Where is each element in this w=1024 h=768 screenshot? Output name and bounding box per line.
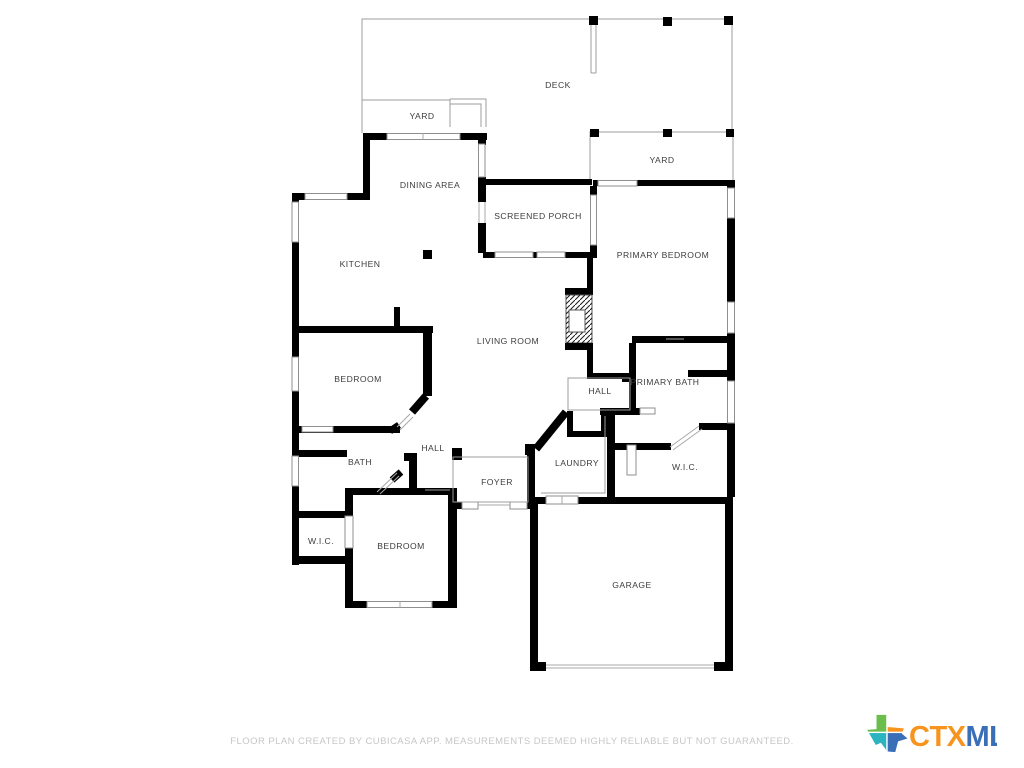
- wall-wic-top-b: [699, 423, 728, 430]
- ctxmls-wordmark: CTXMLS: [909, 721, 997, 753]
- wall-porch-bottom-a: [483, 252, 495, 258]
- wall-living-right-b: [587, 350, 593, 376]
- logo-ctx-text: CTX: [909, 721, 967, 753]
- room-label-screened-porch: SCREENED PORCH: [494, 211, 581, 221]
- room-label-living-room: LIVING ROOM: [477, 336, 539, 346]
- deck-post: [589, 16, 598, 25]
- floor-plan-drawing: DECK YARD YARD DINING AREA SCREENED PORC…: [0, 0, 1024, 768]
- window-foyer-bottom-2: [510, 502, 527, 509]
- wall-kitchen-stub: [394, 307, 400, 327]
- window-bath-left: [292, 456, 299, 486]
- opening-bedroom-left-2: [400, 417, 413, 430]
- texas-quadrant-green: [865, 714, 886, 732]
- deck-post: [590, 129, 599, 137]
- window-dining-porch: [479, 144, 486, 177]
- room-label-bedroom-lower: BEDROOM: [377, 541, 425, 551]
- room-label-hall-center: HALL: [421, 443, 444, 453]
- logo-mls-text: MLS: [966, 721, 998, 753]
- wall-wic-left-top: [293, 511, 347, 518]
- room-label-wic-right: W.I.C.: [672, 462, 698, 472]
- opening-bedroom-left-1: [397, 414, 410, 427]
- fireplace-cap-bottom: [565, 343, 593, 350]
- wall-bedroom-left-right: [423, 333, 432, 396]
- texas-quadrant-teal: [865, 733, 886, 755]
- wall-dining-porch-c: [478, 223, 486, 253]
- window-kitchen-top: [305, 194, 347, 200]
- room-label-wic-left: W.I.C.: [308, 536, 334, 546]
- texas-quadrant-blue: [888, 733, 909, 755]
- room-label-bedroom-left: BEDROOM: [334, 374, 382, 384]
- wall-kitchen-bottom: [292, 326, 433, 333]
- window-porch-bottom-2: [537, 252, 565, 258]
- fireplace: [565, 288, 593, 350]
- wall-island-post: [423, 250, 432, 259]
- wall-dining-porch-b: [478, 177, 486, 202]
- room-label-deck: DECK: [545, 80, 571, 90]
- window-bedroom-left-bottom: [302, 427, 333, 433]
- window-bedroom-left: [292, 357, 299, 391]
- wall-laundry-wic: [607, 412, 615, 497]
- deck-stairs-inner: [450, 104, 481, 127]
- wall-garage-corner-left: [530, 662, 546, 671]
- room-label-yard-lower: YARD: [649, 155, 674, 165]
- room-label-foyer: FOYER: [481, 477, 513, 487]
- room-label-primary-bedroom: PRIMARY BEDROOM: [617, 250, 709, 260]
- room-label-garage: GARAGE: [612, 580, 651, 590]
- room-label-laundry: LAUNDRY: [555, 458, 599, 468]
- wall-wic-left-bottom: [293, 556, 345, 564]
- texas-quadrant-orange: [888, 714, 909, 732]
- window-foyer-bottom-1: [462, 502, 478, 509]
- wall-garage-left: [530, 504, 538, 671]
- wall-alcove-right: [601, 413, 607, 437]
- wall-porch-bottom-c: [565, 252, 597, 258]
- wall-dining-left: [363, 133, 370, 196]
- windows: [292, 134, 735, 608]
- opening-wic-diagonal-1: [670, 426, 699, 447]
- door-wic-left: [345, 516, 353, 548]
- wall-wic-top-a: [615, 443, 671, 450]
- wall-bath-post-flag: [404, 453, 417, 461]
- wall-living-right-a: [587, 258, 593, 289]
- window-primary-bed-right-1: [728, 188, 735, 218]
- window-primary-bed-top: [598, 181, 637, 187]
- wall-porch-bottom-b: [533, 252, 537, 258]
- wall-garage-right: [725, 497, 733, 671]
- wall-porch-top: [483, 179, 592, 185]
- window-primary-bed-left: [591, 195, 597, 245]
- texas-icon: [865, 714, 908, 755]
- deck-posts: [589, 16, 734, 137]
- deck-post: [663, 129, 672, 137]
- window-primary-bed-right-2: [728, 302, 735, 333]
- room-label-kitchen: KITCHEN: [340, 259, 381, 269]
- door-leaf-primary-bath: [640, 408, 655, 414]
- deck-post: [724, 16, 733, 25]
- deck-yard-outlines: [362, 19, 733, 180]
- room-label-hall-upper: HALL: [588, 386, 611, 396]
- window-kitchen-left: [292, 202, 299, 242]
- window-primary-bath-right: [728, 381, 735, 423]
- room-thin-outlines: [425, 378, 630, 502]
- door-leaf-wic-right: [627, 445, 636, 475]
- floor-plan-page: DECK YARD YARD DINING AREA SCREENED PORC…: [0, 0, 1024, 768]
- wall-bath-top: [295, 450, 347, 457]
- deck-post: [726, 129, 734, 137]
- room-label-primary-bath: PRIMARY BATH: [631, 377, 700, 387]
- room-label-yard-upper: YARD: [409, 111, 434, 121]
- fireplace-cap-top: [565, 288, 593, 295]
- opening-wic-diagonal-2: [673, 429, 702, 450]
- wall-shower: [688, 370, 728, 377]
- window-porch-bottom-1: [495, 252, 533, 258]
- doors-openings: [345, 202, 714, 668]
- fireplace-firebox: [569, 310, 585, 332]
- wall-laundry-diagonal: [536, 412, 566, 449]
- wall-bedroom-left-diag: [412, 396, 426, 412]
- wall-primary-bath-stub: [622, 376, 629, 382]
- wall-bedroom-lower-top: [345, 488, 457, 495]
- deck-post: [663, 17, 672, 26]
- room-label-dining-area: DINING AREA: [400, 180, 460, 190]
- wall-garage-corner-right: [714, 662, 733, 671]
- room-label-bath: BATH: [348, 457, 372, 467]
- wall-foyer-bottom-a: [452, 502, 462, 509]
- ctxmls-logo: CTXMLS: [865, 711, 997, 757]
